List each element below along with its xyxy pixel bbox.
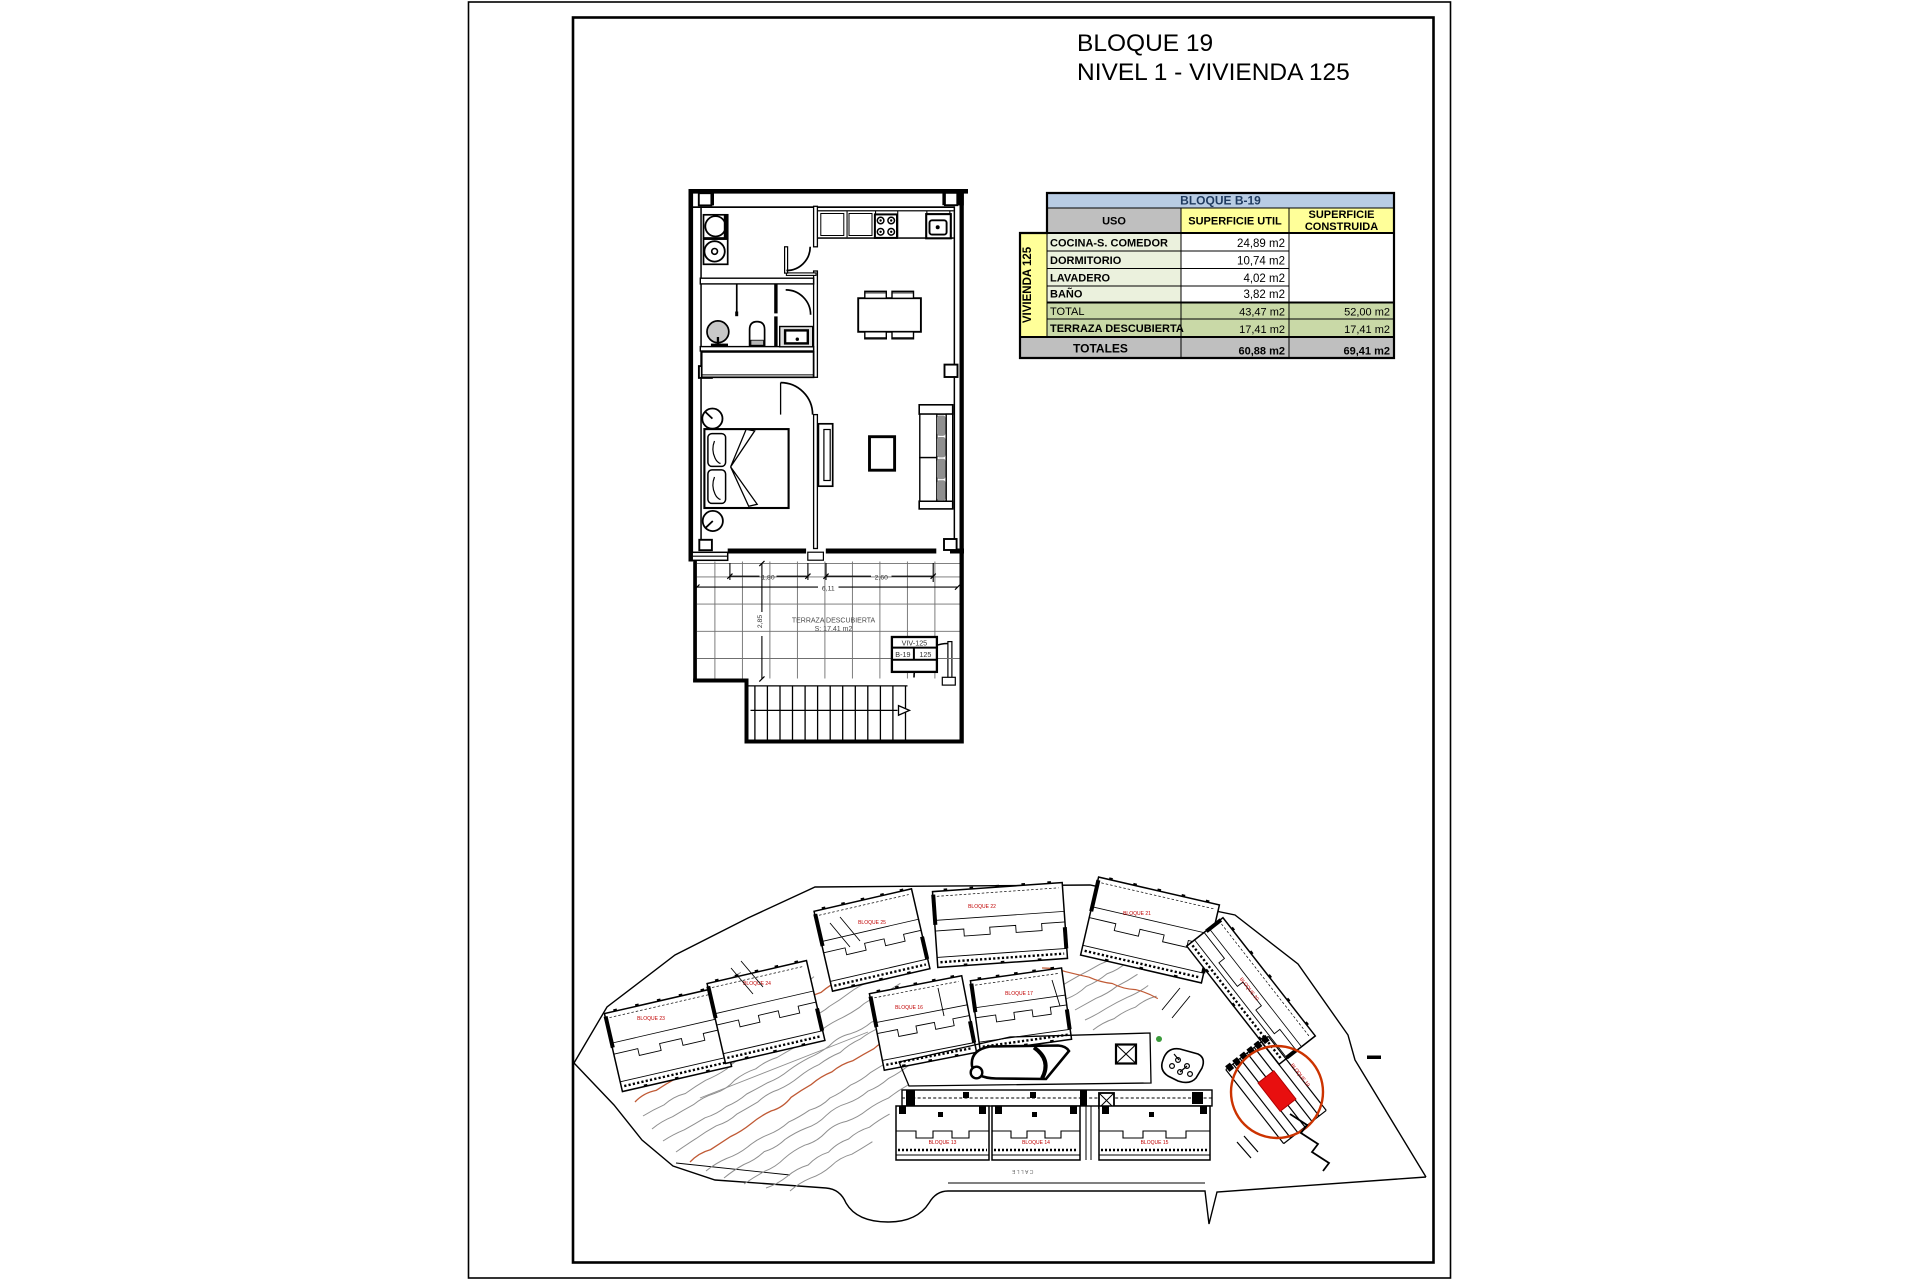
svg-text:BLOQUE 24: BLOQUE 24 <box>743 981 771 987</box>
svg-text:69,41 m2: 69,41 m2 <box>1344 346 1390 358</box>
svg-text:BLOQUE 21: BLOQUE 21 <box>1123 911 1151 917</box>
svg-text:1,80: 1,80 <box>761 575 774 582</box>
svg-text:SUPERFICIE: SUPERFICIE <box>1308 209 1374 221</box>
svg-text:S: 17.41 m2: S: 17.41 m2 <box>815 626 853 633</box>
svg-text:17,41 m2: 17,41 m2 <box>1239 324 1285 336</box>
svg-text:BLOQUE 14: BLOQUE 14 <box>1022 1140 1050 1146</box>
svg-text:BLOQUE 19: BLOQUE 19 <box>1289 1063 1311 1089</box>
svg-text:TOTAL: TOTAL <box>1050 306 1084 318</box>
svg-text:2,85: 2,85 <box>757 615 764 628</box>
svg-text:60,88 m2: 60,88 m2 <box>1239 346 1285 358</box>
svg-text:BLOQUE 13: BLOQUE 13 <box>929 1140 957 1146</box>
svg-text:COCINA-S. COMEDOR: COCINA-S. COMEDOR <box>1050 238 1168 250</box>
svg-text:VIV-125: VIV-125 <box>902 639 928 648</box>
svg-text:BLOQUE 16: BLOQUE 16 <box>895 1005 923 1011</box>
svg-text:52,00 m2: 52,00 m2 <box>1344 307 1390 319</box>
svg-text:BLOQUE 19: BLOQUE 19 <box>1077 30 1213 57</box>
svg-text:BAÑO: BAÑO <box>1050 288 1083 301</box>
svg-text:4,02 m2: 4,02 m2 <box>1243 273 1285 285</box>
svg-text:BLOQUE 15: BLOQUE 15 <box>1141 1140 1169 1146</box>
svg-text:TERRAZA DESCUBIERTA: TERRAZA DESCUBIERTA <box>792 618 876 625</box>
svg-text:VIVIENDA 125: VIVIENDA 125 <box>1022 246 1034 323</box>
svg-text:6,11: 6,11 <box>822 586 835 593</box>
svg-text:TERRAZA DESCUBIERTA: TERRAZA DESCUBIERTA <box>1050 323 1184 335</box>
svg-text:BLOQUE 17: BLOQUE 17 <box>1005 991 1033 997</box>
svg-text:BLOQUE B-19: BLOQUE B-19 <box>1180 194 1261 208</box>
svg-text:24,89 m2: 24,89 m2 <box>1237 238 1285 250</box>
svg-text:CALLE: CALLE <box>1011 1168 1034 1174</box>
svg-text:BLOQUE 25: BLOQUE 25 <box>858 920 886 926</box>
svg-text:BLOQUE 23: BLOQUE 23 <box>637 1016 665 1022</box>
svg-text:DORMITORIO: DORMITORIO <box>1050 255 1122 267</box>
svg-text:B-19: B-19 <box>895 650 910 659</box>
svg-text:NIVEL 1 - VIVIENDA 125: NIVEL 1 - VIVIENDA 125 <box>1077 59 1350 86</box>
svg-text:USO: USO <box>1102 216 1126 228</box>
svg-text:3,82 m2: 3,82 m2 <box>1243 289 1285 301</box>
svg-text:10,74 m2: 10,74 m2 <box>1237 256 1285 268</box>
svg-text:17,41 m2: 17,41 m2 <box>1344 324 1390 336</box>
svg-text:CONSTRUIDA: CONSTRUIDA <box>1305 221 1378 233</box>
svg-text:43,47 m2: 43,47 m2 <box>1239 307 1285 319</box>
svg-text:2,60: 2,60 <box>875 575 888 582</box>
svg-text:125: 125 <box>919 650 931 659</box>
svg-text:TOTALES: TOTALES <box>1073 342 1128 356</box>
svg-text:LAVADERO: LAVADERO <box>1050 273 1111 285</box>
svg-text:BLOQUE 22: BLOQUE 22 <box>968 904 996 910</box>
svg-text:SUPERFICIE UTIL: SUPERFICIE UTIL <box>1188 216 1282 228</box>
